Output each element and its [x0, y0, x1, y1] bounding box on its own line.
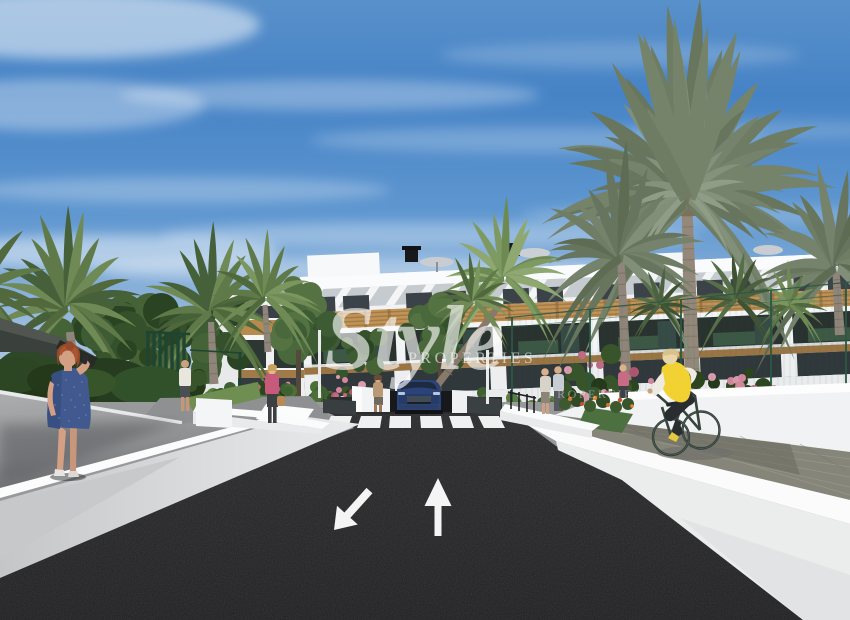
svg-text:PROPERTIES: PROPERTIES — [408, 350, 536, 367]
svg-text:Style: Style — [324, 287, 503, 389]
svg-text:PROPERTIES: PROPERTIES — [548, 387, 643, 401]
